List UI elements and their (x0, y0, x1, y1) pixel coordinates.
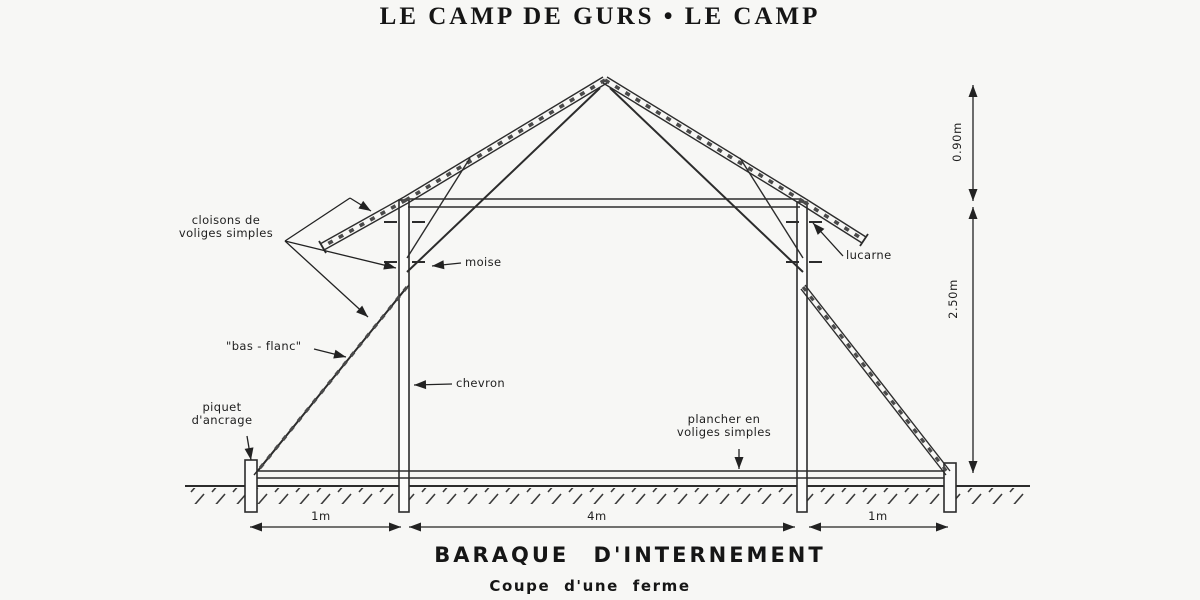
dim-wall-height: 2.50m (946, 269, 960, 329)
rafter-right (603, 77, 806, 205)
rafter-left (404, 77, 607, 203)
ground (185, 486, 1030, 504)
label-cloisons-line1: cloisons de (192, 213, 261, 227)
post-right (797, 202, 807, 512)
label-lucarne: lucarne (846, 249, 892, 262)
dim-right-span: 1m (858, 509, 898, 523)
label-moise: moise (465, 256, 502, 269)
post-left (399, 200, 409, 512)
label-bas-flanc: "bas - flanc" (226, 340, 301, 353)
label-plancher: plancher en voliges simples (652, 413, 796, 439)
bas-flanc-right (801, 285, 950, 475)
label-cloisons: cloisons de voliges simples (166, 214, 286, 240)
dim-center-span: 4m (577, 509, 617, 523)
label-chevron: chevron (456, 377, 505, 390)
label-piquet: piquet d'ancrage (180, 401, 264, 427)
dormer-slat-left (319, 197, 408, 253)
label-piquet-line2: d'ancrage (192, 413, 253, 427)
floor-planks (257, 471, 944, 478)
page: LE CAMP DE GURS • LE CAMP (0, 0, 1200, 600)
tie-beam (408, 199, 800, 207)
dim-ridge-height: 0.90m (950, 112, 964, 172)
bas-flanc-left (254, 285, 409, 475)
anchor-stake-left (245, 460, 257, 512)
caption-subtitle: Coupe d'une ferme (0, 577, 1180, 595)
label-plancher-line1: plancher en (688, 412, 761, 426)
caption-title: BARAQUE D'INTERNEMENT (0, 543, 1200, 567)
label-plancher-line2: voliges simples (677, 425, 771, 439)
struts (407, 88, 803, 272)
label-piquet-line1: piquet (202, 400, 241, 414)
label-cloisons-line2: voliges simples (179, 226, 273, 240)
dim-left-span: 1m (301, 509, 341, 523)
